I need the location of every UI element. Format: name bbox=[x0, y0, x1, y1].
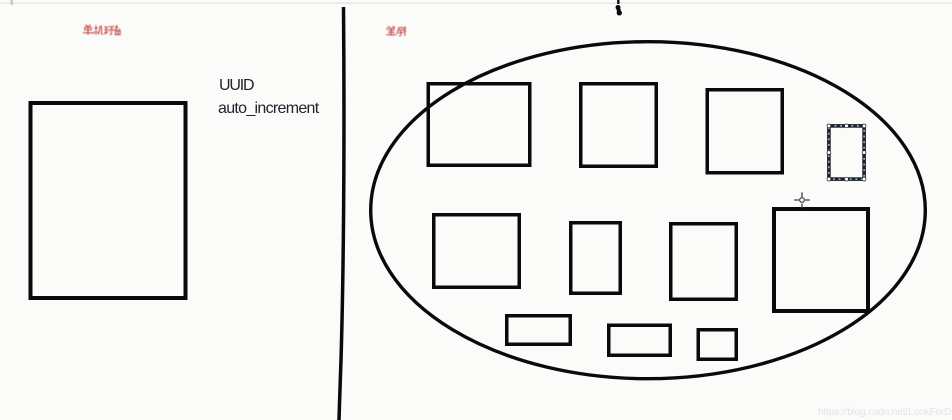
svg-text:auto_increment: auto_increment bbox=[218, 100, 320, 117]
svg-text:https://blog.csdn.net/LookForD: https://blog.csdn.net/LookForDream bbox=[818, 407, 952, 418]
svg-text:UUID: UUID bbox=[219, 77, 254, 94]
